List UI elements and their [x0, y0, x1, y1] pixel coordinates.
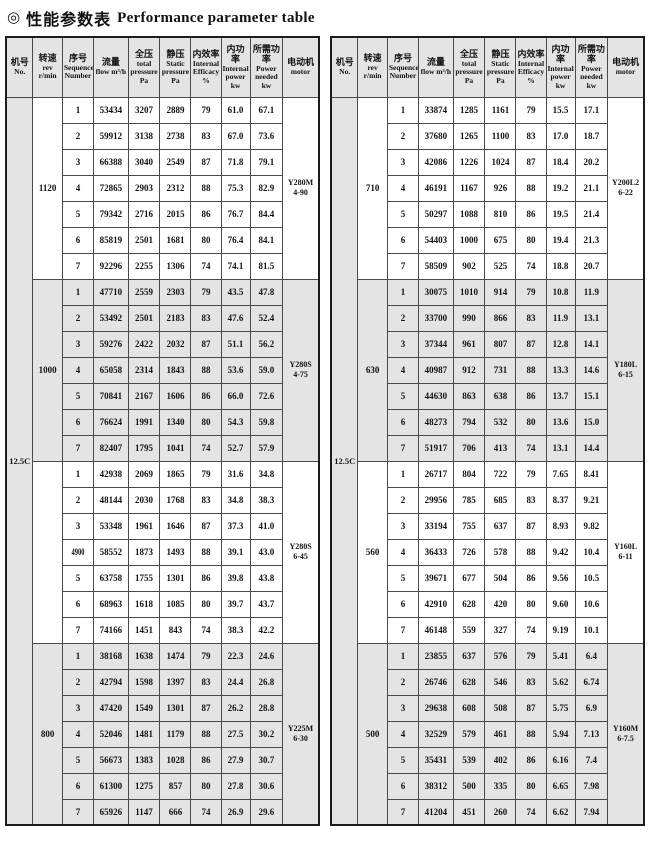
cell-eff: 79 [191, 279, 221, 305]
motor-model: Y160M [609, 724, 642, 734]
cell-pneed: 29.6 [250, 799, 283, 825]
cell-static: 2032 [160, 331, 191, 357]
cell-seq: 5 [62, 747, 93, 773]
motor-model: Y225M [284, 724, 317, 734]
cell-pneed: 10.6 [575, 591, 608, 617]
cell-flow: 26746 [419, 669, 453, 695]
motor-model: Y180L [609, 360, 642, 370]
cell-static: 546 [485, 669, 516, 695]
cell-ipow: 27.8 [221, 773, 250, 799]
cell-pneed: 84.1 [250, 227, 283, 253]
cell-ipow: 6.62 [546, 799, 575, 825]
cell-seq: 3 [387, 331, 418, 357]
cell-pneed: 6.4 [575, 643, 608, 669]
cell-flow: 76624 [94, 409, 128, 435]
cell-static: 1028 [160, 747, 191, 773]
cell-pneed: 38.3 [250, 487, 283, 513]
cell-flow: 51917 [419, 435, 453, 461]
cell-flow: 30075 [419, 279, 453, 305]
col-header-total: 全压total pressure Pa [453, 37, 485, 97]
cell-ipow: 43.5 [221, 279, 250, 305]
cell-total: 3207 [128, 97, 160, 123]
cell-pneed: 20.2 [575, 149, 608, 175]
cell-static: 1474 [160, 643, 191, 669]
cell-flow: 54403 [419, 227, 453, 253]
cell-flow: 26717 [419, 461, 453, 487]
cell-seq: 1 [62, 461, 93, 487]
cell-pneed: 21.1 [575, 175, 608, 201]
motor-model: Y160L [609, 542, 642, 552]
cell-pneed: 11.9 [575, 279, 608, 305]
cell-seq: 6 [387, 591, 418, 617]
cell-static: 675 [485, 227, 516, 253]
cell-seq: 4900 [62, 539, 93, 565]
col-header-en: Static pressure Pa [161, 60, 189, 85]
cell-total: 539 [453, 747, 485, 773]
cell-total: 677 [453, 565, 485, 591]
cell-static: 2183 [160, 305, 191, 331]
title-en: Performance parameter table [117, 10, 315, 27]
col-header-cn: 所需功率 [577, 45, 607, 66]
cell-flow: 65058 [94, 357, 128, 383]
motor-spec: 6-45 [284, 552, 317, 562]
cell-total: 961 [453, 331, 485, 357]
cell-ipow: 6.65 [546, 773, 575, 799]
cell-ipow: 31.6 [221, 461, 250, 487]
cell-pneed: 30.2 [250, 721, 283, 747]
cell-seq: 2 [387, 669, 418, 695]
col-header-en: rev r/min [34, 64, 60, 81]
cell-total: 1000 [453, 227, 485, 253]
cell-eff: 87 [516, 149, 546, 175]
cell-static: 1085 [160, 591, 191, 617]
table-row: 142938206918657931.634.8Y280S6-45 [6, 461, 319, 487]
cell-eff: 74 [191, 435, 221, 461]
cell-ipow: 38.3 [221, 617, 250, 643]
rev-cell [33, 461, 62, 643]
cell-total: 559 [453, 617, 485, 643]
cell-flow: 39671 [419, 565, 453, 591]
cell-eff: 74 [191, 799, 221, 825]
motor-model: Y280S [284, 360, 317, 370]
cell-ipow: 12.8 [546, 331, 575, 357]
cell-total: 1167 [453, 175, 485, 201]
cell-seq: 6 [62, 409, 93, 435]
col-header-no: 机号No. [331, 37, 358, 97]
cell-eff: 74 [516, 617, 546, 643]
col-header-en: Power needed kw [252, 65, 282, 90]
cell-ipow: 18.4 [546, 149, 575, 175]
cell-flow: 38312 [419, 773, 453, 799]
cell-pneed: 21.4 [575, 201, 608, 227]
cell-eff: 80 [516, 227, 546, 253]
cell-seq: 4 [62, 175, 93, 201]
cell-flow: 32529 [419, 721, 453, 747]
cell-static: 525 [485, 253, 516, 279]
cell-pneed: 30.7 [250, 747, 283, 773]
cell-eff: 87 [191, 149, 221, 175]
cell-static: 1646 [160, 513, 191, 539]
cell-pneed: 10.4 [575, 539, 608, 565]
cell-seq: 4 [62, 357, 93, 383]
cell-pneed: 34.8 [250, 461, 283, 487]
cell-eff: 79 [191, 461, 221, 487]
machine-no-cell: 12.5C [331, 97, 358, 825]
cell-total: 2501 [128, 227, 160, 253]
cell-flow: 74166 [94, 617, 128, 643]
cell-ipow: 37.3 [221, 513, 250, 539]
cell-seq: 3 [62, 331, 93, 357]
col-header-cn: 内功率 [548, 45, 574, 66]
cell-ipow: 13.6 [546, 409, 575, 435]
cell-pneed: 73.6 [250, 123, 283, 149]
cell-static: 2303 [160, 279, 191, 305]
cell-pneed: 42.2 [250, 617, 283, 643]
cell-ipow: 5.94 [546, 721, 575, 747]
cell-static: 2015 [160, 201, 191, 227]
cell-total: 1383 [128, 747, 160, 773]
cell-seq: 5 [62, 201, 93, 227]
cell-eff: 83 [516, 669, 546, 695]
cell-eff: 86 [191, 383, 221, 409]
cell-ipow: 9.42 [546, 539, 575, 565]
cell-flow: 48273 [419, 409, 453, 435]
col-header-ipow: 内功率Internal power kw [546, 37, 575, 97]
cell-static: 532 [485, 409, 516, 435]
motor-spec: 6-30 [284, 734, 317, 744]
cell-pneed: 6.9 [575, 695, 608, 721]
table-row: 12.5C1120153434320728897961.067.1Y280M4-… [6, 97, 319, 123]
cell-ipow: 19.4 [546, 227, 575, 253]
col-header-no: 机号No. [6, 37, 33, 97]
cell-total: 863 [453, 383, 485, 409]
cell-flow: 85819 [94, 227, 128, 253]
cell-static: 413 [485, 435, 516, 461]
col-header-en: Internal Efficacy % [517, 60, 544, 85]
cell-ipow: 15.5 [546, 97, 575, 123]
cell-eff: 88 [191, 539, 221, 565]
cell-static: 843 [160, 617, 191, 643]
cell-ipow: 6.16 [546, 747, 575, 773]
cell-seq: 3 [387, 513, 418, 539]
cell-eff: 79 [516, 97, 546, 123]
cell-total: 628 [453, 591, 485, 617]
cell-flow: 68963 [94, 591, 128, 617]
cell-flow: 33194 [419, 513, 453, 539]
col-header-seq: 序号Sequence Number [387, 37, 418, 97]
cell-static: 1768 [160, 487, 191, 513]
cell-static: 1340 [160, 409, 191, 435]
cell-flow: 82407 [94, 435, 128, 461]
motor-spec: 4-75 [284, 370, 317, 380]
cell-static: 866 [485, 305, 516, 331]
cell-total: 3040 [128, 149, 160, 175]
cell-eff: 86 [516, 565, 546, 591]
cell-pneed: 17.1 [575, 97, 608, 123]
cell-eff: 74 [191, 617, 221, 643]
motor-spec: 6-11 [609, 552, 642, 562]
cell-total: 1265 [453, 123, 485, 149]
cell-flow: 50297 [419, 201, 453, 227]
col-header-en: No. [333, 68, 356, 76]
cell-ipow: 10.8 [546, 279, 575, 305]
motor-cell: Y160M6-7.5 [608, 643, 644, 825]
cell-eff: 87 [191, 513, 221, 539]
cell-ipow: 39.7 [221, 591, 250, 617]
cell-seq: 7 [62, 617, 93, 643]
cell-pneed: 30.6 [250, 773, 283, 799]
cell-seq: 2 [62, 669, 93, 695]
cell-flow: 37680 [419, 123, 453, 149]
cell-pneed: 14.4 [575, 435, 608, 461]
cell-total: 1010 [453, 279, 485, 305]
col-header-static: 静压Static pressure Pa [160, 37, 191, 97]
cell-total: 1638 [128, 643, 160, 669]
cell-eff: 83 [516, 305, 546, 331]
cell-seq: 6 [387, 409, 418, 435]
cell-eff: 88 [516, 175, 546, 201]
col-header-en: No. [8, 68, 31, 76]
cell-ipow: 22.3 [221, 643, 250, 669]
cell-flow: 41204 [419, 799, 453, 825]
cell-ipow: 7.65 [546, 461, 575, 487]
cell-ipow: 5.62 [546, 669, 575, 695]
cell-pneed: 13.1 [575, 305, 608, 331]
motor-cell: Y280S4-75 [283, 279, 319, 461]
col-header-ipow: 内功率Internal power kw [221, 37, 250, 97]
cell-eff: 87 [191, 331, 221, 357]
cell-pneed: 59.8 [250, 409, 283, 435]
cell-eff: 79 [191, 643, 221, 669]
motor-cell: Y280S6-45 [283, 461, 319, 643]
cell-total: 608 [453, 695, 485, 721]
cell-static: 1161 [485, 97, 516, 123]
cell-eff: 88 [191, 357, 221, 383]
cell-eff: 83 [191, 669, 221, 695]
cell-eff: 83 [516, 487, 546, 513]
cell-ipow: 13.1 [546, 435, 575, 461]
cell-static: 2549 [160, 149, 191, 175]
col-header-en: total pressure Pa [130, 60, 159, 85]
cell-seq: 2 [387, 123, 418, 149]
cell-total: 579 [453, 721, 485, 747]
col-header-en: Sequence Number [389, 64, 417, 81]
cell-pneed: 72.6 [250, 383, 283, 409]
cell-total: 2069 [128, 461, 160, 487]
cell-total: 755 [453, 513, 485, 539]
cell-eff: 87 [516, 513, 546, 539]
table-body: 12.5C1120153434320728897961.067.1Y280M4-… [6, 97, 319, 825]
cell-flow: 29956 [419, 487, 453, 513]
table-header: 机号No.转速rev r/min序号Sequence Number流量flow … [331, 37, 644, 97]
cell-ipow: 53.6 [221, 357, 250, 383]
cell-static: 260 [485, 799, 516, 825]
cell-static: 1493 [160, 539, 191, 565]
cell-seq: 4 [387, 175, 418, 201]
cell-eff: 79 [191, 97, 221, 123]
cell-pneed: 67.1 [250, 97, 283, 123]
col-header-total: 全压total pressure Pa [128, 37, 160, 97]
cell-pneed: 43.0 [250, 539, 283, 565]
cell-pneed: 9.21 [575, 487, 608, 513]
cell-static: 1024 [485, 149, 516, 175]
cell-seq: 6 [387, 227, 418, 253]
cell-pneed: 79.1 [250, 149, 283, 175]
cell-ipow: 52.7 [221, 435, 250, 461]
cell-eff: 80 [191, 591, 221, 617]
cell-seq: 3 [62, 149, 93, 175]
cell-eff: 88 [516, 539, 546, 565]
cell-pneed: 21.3 [575, 227, 608, 253]
cell-total: 1873 [128, 539, 160, 565]
cell-flow: 56673 [94, 747, 128, 773]
cell-ipow: 47.6 [221, 305, 250, 331]
cell-flow: 47420 [94, 695, 128, 721]
motor-spec: 6-7.5 [609, 734, 642, 744]
page-title: ◎ 性能参数表 Performance parameter table [5, 4, 645, 36]
cell-pneed: 7.13 [575, 721, 608, 747]
motor-spec: 6-22 [609, 188, 642, 198]
cell-eff: 74 [516, 435, 546, 461]
cell-pneed: 57.9 [250, 435, 283, 461]
col-header-eff: 内效率Internal Efficacy % [191, 37, 221, 97]
cell-flow: 23855 [419, 643, 453, 669]
cell-flow: 38168 [94, 643, 128, 669]
cell-total: 1755 [128, 565, 160, 591]
cell-eff: 86 [191, 565, 221, 591]
cell-eff: 79 [516, 279, 546, 305]
cell-seq: 6 [62, 773, 93, 799]
cell-pneed: 59.0 [250, 357, 283, 383]
cell-pneed: 8.41 [575, 461, 608, 487]
col-header-seq: 序号Sequence Number [62, 37, 93, 97]
cell-flow: 40987 [419, 357, 453, 383]
cell-static: 914 [485, 279, 516, 305]
cell-seq: 3 [387, 149, 418, 175]
cell-pneed: 14.1 [575, 331, 608, 357]
cell-ipow: 24.4 [221, 669, 250, 695]
cell-total: 2314 [128, 357, 160, 383]
cell-ipow: 39.1 [221, 539, 250, 565]
cell-total: 902 [453, 253, 485, 279]
table-header: 机号No.转速rev r/min序号Sequence Number流量flow … [6, 37, 319, 97]
cell-eff: 87 [191, 695, 221, 721]
cell-static: 1606 [160, 383, 191, 409]
cell-flow: 48144 [94, 487, 128, 513]
cell-seq: 1 [387, 279, 418, 305]
cell-static: 508 [485, 695, 516, 721]
col-header-motor: 电动机motor [283, 37, 319, 97]
col-header-motor: 电动机motor [608, 37, 644, 97]
cell-ipow: 51.1 [221, 331, 250, 357]
cell-seq: 2 [62, 305, 93, 331]
table-row: 12.5C710133874128511617915.517.1Y200L26-… [331, 97, 644, 123]
cell-seq: 4 [387, 357, 418, 383]
cell-ipow: 26.9 [221, 799, 250, 825]
cell-seq: 4 [387, 721, 418, 747]
cell-total: 990 [453, 305, 485, 331]
cell-ipow: 13.7 [546, 383, 575, 409]
cell-static: 666 [160, 799, 191, 825]
cell-flow: 42910 [419, 591, 453, 617]
cell-total: 1549 [128, 695, 160, 721]
cell-total: 1598 [128, 669, 160, 695]
cell-static: 1179 [160, 721, 191, 747]
cell-pneed: 81.5 [250, 253, 283, 279]
motor-cell: Y225M6-30 [283, 643, 319, 825]
cell-seq: 7 [387, 799, 418, 825]
col-header-en: total pressure Pa [455, 60, 484, 85]
cell-static: 807 [485, 331, 516, 357]
cell-seq: 7 [387, 253, 418, 279]
cell-seq: 7 [62, 435, 93, 461]
motor-cell: Y280M4-90 [283, 97, 319, 279]
cell-static: 1397 [160, 669, 191, 695]
table-row: 560126717804722797.658.41Y160L6-11 [331, 461, 644, 487]
cell-eff: 80 [191, 409, 221, 435]
cell-static: 335 [485, 773, 516, 799]
cell-pneed: 24.6 [250, 643, 283, 669]
cell-static: 2738 [160, 123, 191, 149]
cell-pneed: 41.0 [250, 513, 283, 539]
motor-cell: Y200L26-22 [608, 97, 644, 279]
cell-ipow: 5.75 [546, 695, 575, 721]
cell-flow: 36433 [419, 539, 453, 565]
cell-pneed: 7.4 [575, 747, 608, 773]
table-body: 12.5C710133874128511617915.517.1Y200L26-… [331, 97, 644, 825]
cell-total: 1795 [128, 435, 160, 461]
cell-total: 785 [453, 487, 485, 513]
seq-squeezed-value: 4900 [71, 547, 84, 557]
cell-flow: 46148 [419, 617, 453, 643]
cell-static: 420 [485, 591, 516, 617]
cell-ipow: 18.8 [546, 253, 575, 279]
cell-eff: 80 [191, 227, 221, 253]
cell-pneed: 14.6 [575, 357, 608, 383]
col-header-pneed: 所需功率Power needed kw [250, 37, 283, 97]
cell-flow: 33700 [419, 305, 453, 331]
cell-pneed: 47.8 [250, 279, 283, 305]
cell-flow: 29638 [419, 695, 453, 721]
cell-static: 1100 [485, 123, 516, 149]
bullseye-icon: ◎ [7, 11, 20, 26]
cell-flow: 70841 [94, 383, 128, 409]
cell-ipow: 34.8 [221, 487, 250, 513]
cell-seq: 3 [62, 513, 93, 539]
cell-total: 1991 [128, 409, 160, 435]
cell-static: 576 [485, 643, 516, 669]
cell-total: 1451 [128, 617, 160, 643]
cell-flow: 42938 [94, 461, 128, 487]
cell-ipow: 26.2 [221, 695, 250, 721]
header-row: 机号No.转速rev r/min序号Sequence Number流量flow … [331, 37, 644, 97]
cell-flow: 44630 [419, 383, 453, 409]
cell-eff: 83 [191, 487, 221, 513]
cell-seq: 1 [62, 643, 93, 669]
cell-eff: 86 [191, 201, 221, 227]
cell-ipow: 67.0 [221, 123, 250, 149]
cell-total: 1147 [128, 799, 160, 825]
rev-cell: 560 [358, 461, 387, 643]
col-header-en: Internal power kw [548, 65, 574, 90]
perf-table-right: 机号No.转速rev r/min序号Sequence Number流量flow … [330, 36, 645, 826]
table-row: 1000147710255923037943.547.8Y280S4-75 [6, 279, 319, 305]
cell-seq: 1 [387, 643, 418, 669]
cell-static: 810 [485, 201, 516, 227]
cell-total: 804 [453, 461, 485, 487]
cell-static: 2889 [160, 97, 191, 123]
cell-seq: 5 [62, 565, 93, 591]
